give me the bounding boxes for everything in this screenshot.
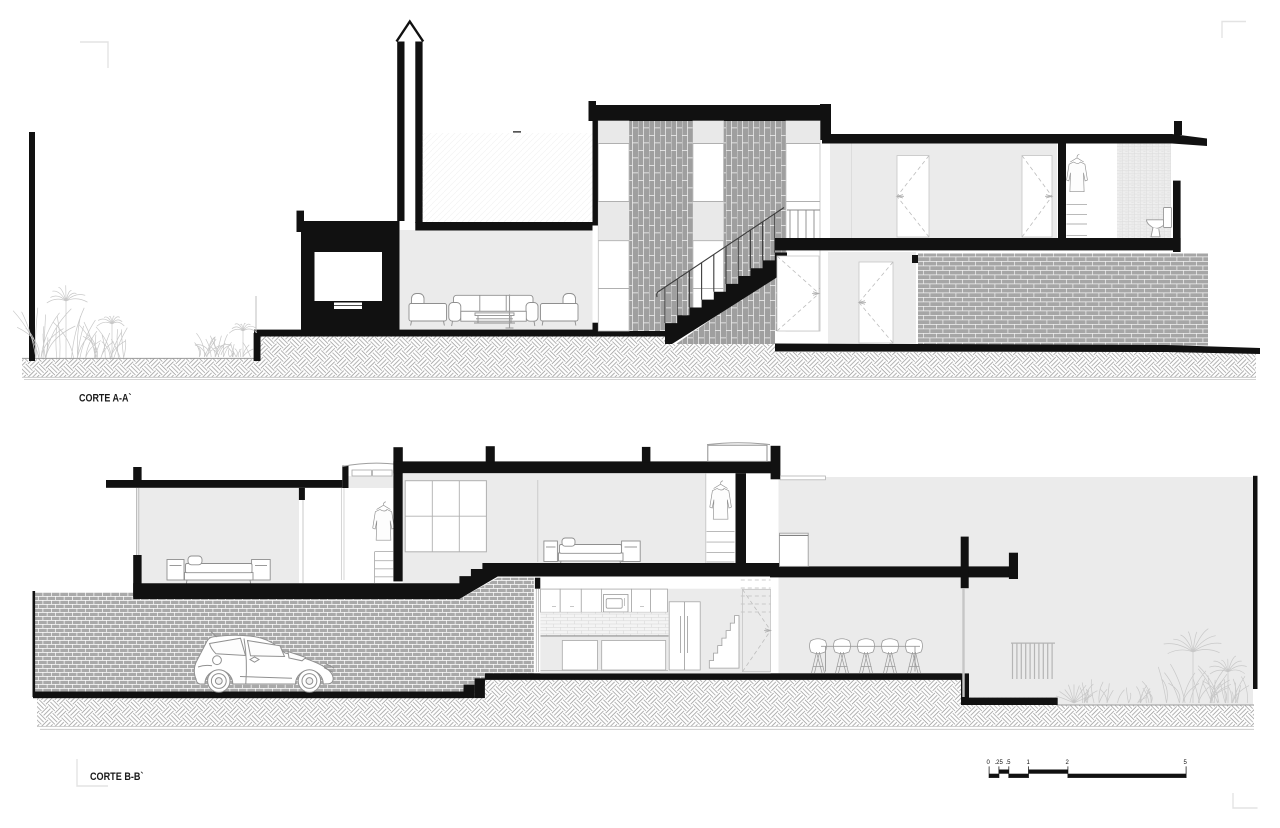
svg-text:CORTE B-B`: CORTE B-B`: [90, 771, 144, 783]
svg-text:.5: .5: [1006, 760, 1012, 766]
svg-text:.25: .25: [995, 760, 1004, 766]
svg-text:CORTE A-A`: CORTE A-A`: [79, 392, 132, 404]
